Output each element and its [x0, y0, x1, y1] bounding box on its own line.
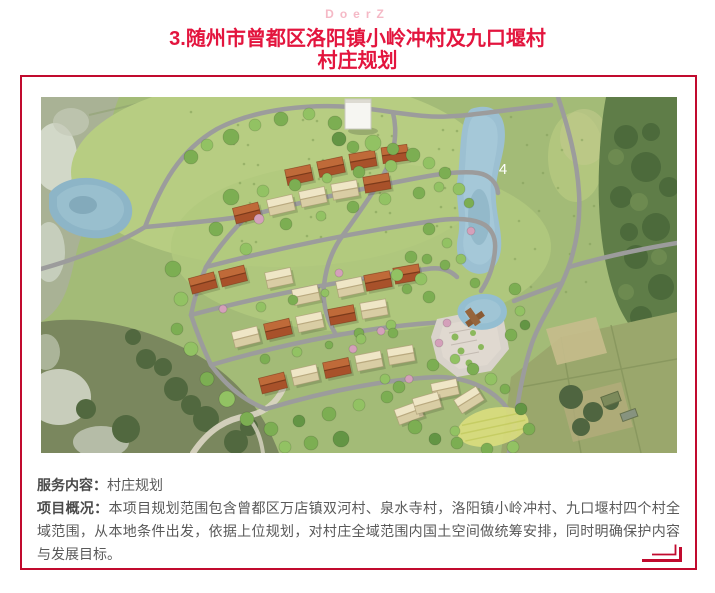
- overview-text: 本项目规划范围包含曾都区万店镇双河村、泉水寺村，洛阳镇小岭冲村、九口堰村四个村全…: [37, 500, 680, 562]
- title-line-2: 村庄规划: [0, 50, 715, 72]
- project-description: 服务内容：村庄规划 项目概况：本项目规划范围包含曾都区万店镇双河村、泉水寺村，洛…: [37, 474, 680, 566]
- pond-number-label: 4: [498, 161, 506, 178]
- brand-watermark: DoerZ: [0, 7, 715, 21]
- page-title: 3.随州市曾都区洛阳镇小岭冲村及九口堰村 村庄规划: [0, 28, 715, 73]
- overview-label: 项目概况：: [37, 500, 108, 516]
- corner-flourish-icon: [639, 543, 687, 563]
- content-box: 4 服务内容：村庄规划 项目概况：本项目规划范围包含曾都区万店镇双河村、泉水寺村…: [20, 75, 697, 570]
- description-row: 项目概况：本项目规划范围包含曾都区万店镇双河村、泉水寺村，洛阳镇小岭冲村、九口堰…: [37, 497, 680, 566]
- site-plan-map: 4: [41, 97, 677, 453]
- title-line-1: 3.随州市曾都区洛阳镇小岭冲村及九口堰村: [0, 28, 715, 50]
- service-label: 服务内容：: [37, 477, 107, 493]
- master-plan-image: 4: [41, 97, 677, 453]
- description-row: 服务内容：村庄规划: [37, 474, 680, 497]
- service-text: 村庄规划: [107, 477, 163, 493]
